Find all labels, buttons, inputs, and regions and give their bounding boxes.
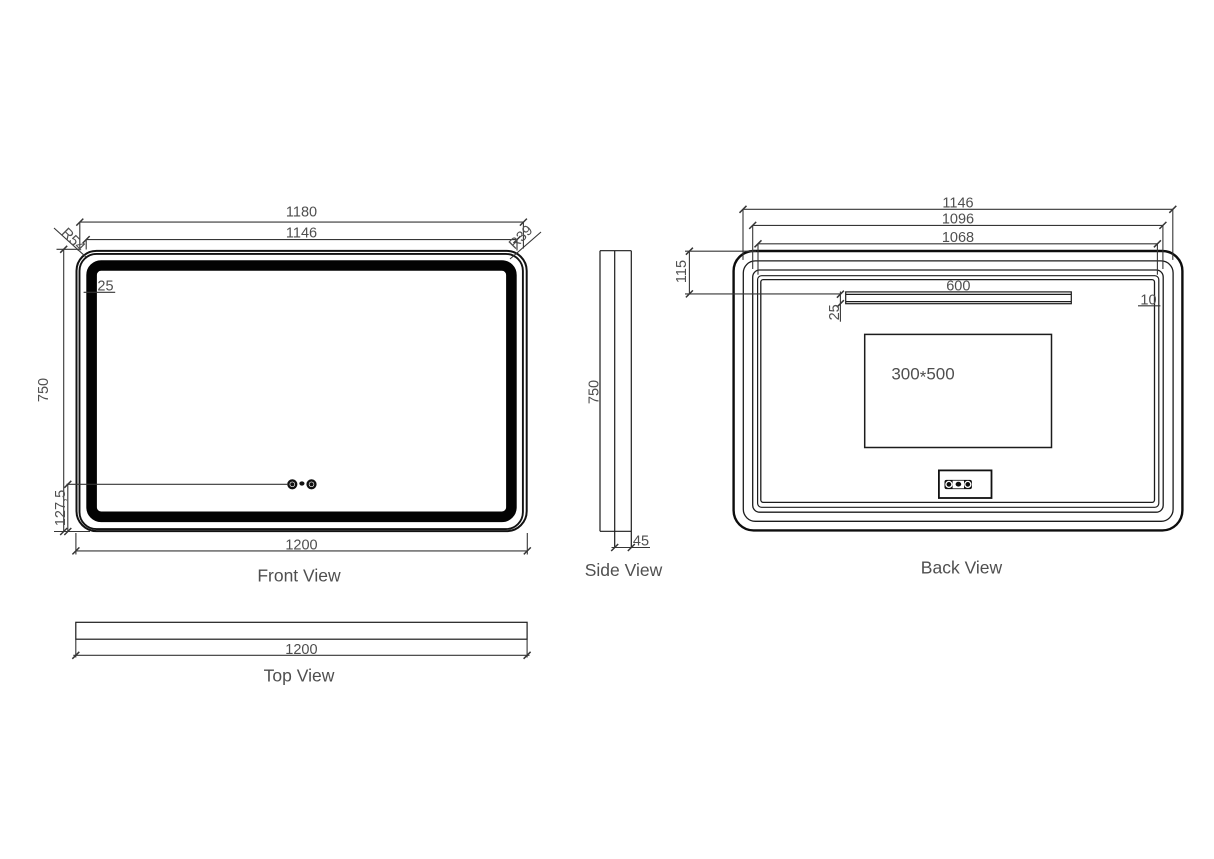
svg-text:600: 600 — [946, 279, 970, 295]
svg-text:1096: 1096 — [942, 211, 974, 227]
svg-text:300*500: 300*500 — [891, 365, 954, 387]
svg-text:750: 750 — [587, 380, 603, 404]
svg-text:Top View: Top View — [264, 666, 335, 686]
svg-text:45: 45 — [633, 534, 649, 550]
svg-text:R39: R39 — [506, 223, 536, 253]
svg-text:750: 750 — [36, 378, 52, 402]
svg-text:1146: 1146 — [942, 195, 973, 211]
svg-text:115: 115 — [674, 260, 690, 283]
svg-text:127,5: 127,5 — [53, 490, 69, 526]
svg-text:Back View: Back View — [921, 558, 1003, 578]
svg-text:1180: 1180 — [286, 205, 317, 221]
svg-text:1146: 1146 — [286, 225, 317, 241]
svg-text:1068: 1068 — [942, 230, 974, 246]
svg-text:10: 10 — [1140, 292, 1156, 308]
svg-text:Front View: Front View — [257, 566, 341, 586]
svg-text:1200: 1200 — [285, 537, 317, 553]
svg-text:1200: 1200 — [285, 642, 317, 658]
svg-text:25: 25 — [97, 279, 113, 295]
svg-text:Side View: Side View — [585, 560, 663, 580]
svg-text:25: 25 — [827, 304, 843, 320]
